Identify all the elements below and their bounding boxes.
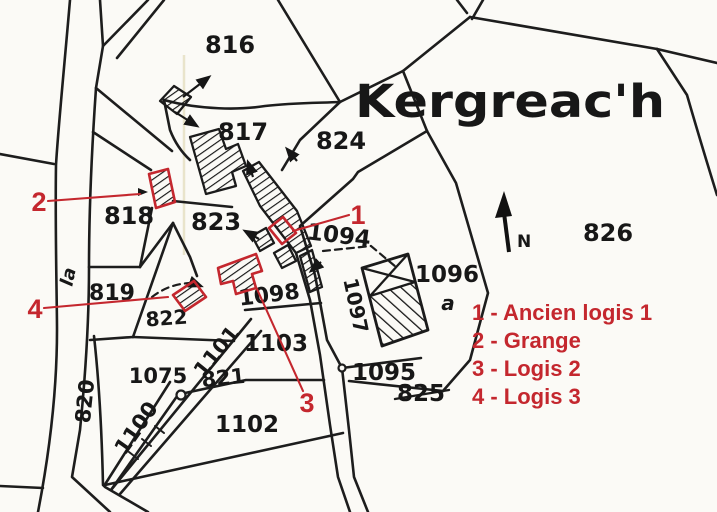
place-name: Kergreac'h	[355, 75, 665, 128]
legend-item-4: 4 - Logis 3	[472, 384, 581, 409]
parcel-label-825: 825	[397, 381, 445, 407]
marker-4: 4	[27, 294, 42, 324]
parcel-sub-label-a: a	[441, 291, 455, 315]
parcel-label-820: 820	[71, 378, 99, 424]
north-label: N	[517, 232, 531, 252]
boundary-node	[177, 391, 186, 400]
parcel-label-1102: 1102	[215, 412, 279, 438]
parcel-label-821: 821	[200, 364, 246, 392]
legend-item-2: 2 - Grange	[472, 328, 581, 353]
parcel-label-826: 826	[583, 219, 633, 247]
legend-item-3: 3 - Logis 2	[472, 356, 581, 381]
parcel-label-1096: 1096	[415, 262, 479, 288]
parcel-label-823: 823	[191, 208, 241, 236]
marker-1: 1	[350, 200, 365, 230]
parcel-label-816: 816	[205, 31, 255, 59]
marker-3: 3	[299, 388, 314, 418]
map-canvas: N Kergreac'h 816 817 824 818 823 826 819…	[0, 0, 717, 512]
boundary-node	[339, 365, 346, 372]
parcel-label-817: 817	[218, 118, 268, 146]
parcel-label-824: 824	[316, 127, 366, 155]
parcel-label-818: 818	[104, 202, 154, 230]
parcel-label-1103: 1103	[244, 331, 308, 357]
legend-item-1: 1 - Ancien logis 1	[472, 300, 652, 325]
parcel-label-1075: 1075	[129, 364, 187, 388]
marker-2: 2	[31, 187, 46, 217]
cadastral-map: N Kergreac'h 816 817 824 818 823 826 819…	[0, 0, 717, 512]
